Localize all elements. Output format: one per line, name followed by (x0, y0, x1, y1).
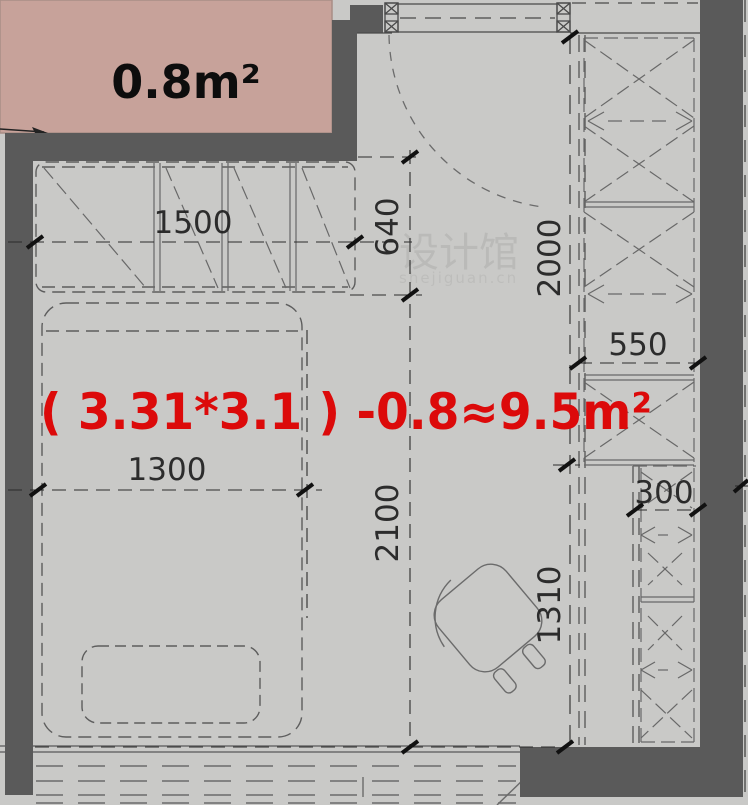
wall-pier-door (350, 5, 383, 33)
wall-right (700, 0, 743, 797)
wall-left (5, 133, 33, 795)
dim-bed-width: 1300 (128, 452, 207, 488)
dim-room-length: 2100 (370, 484, 406, 563)
wall-bottom-right (520, 747, 703, 797)
small-area-label: 0.8m² (111, 55, 261, 109)
dim-cabinet-width: 300 (634, 475, 693, 511)
wall-pier-left-of-door (332, 20, 357, 133)
dim-entry-depth: 640 (370, 197, 406, 256)
floor-plan-page: 设计馆 shejiguan.cn 1500 640 2000 550 300 1… (0, 0, 748, 805)
dim-wardrobe-width: 550 (608, 327, 667, 363)
dim-cabinet-run-length: 1310 (532, 566, 568, 645)
area-formula: ( 3.31*3.1 ) -0.8≈9.5m² (40, 383, 652, 441)
dim-wardrobe-height: 2000 (532, 219, 568, 298)
wall-top (5, 133, 357, 161)
watermark-site: shejiguan.cn (399, 269, 518, 287)
watermark: 设计馆 shejiguan.cn (399, 230, 519, 287)
floor-plan-canvas: 设计馆 shejiguan.cn 1500 640 2000 550 300 1… (0, 0, 748, 805)
dim-closet-width: 1500 (154, 205, 233, 241)
